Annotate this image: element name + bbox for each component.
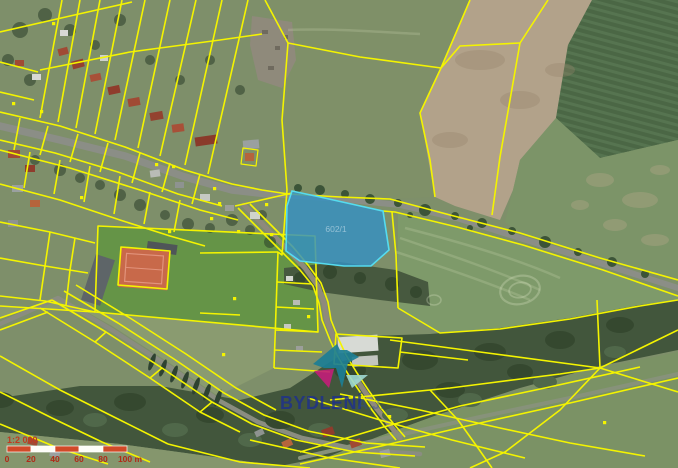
scale-tick-20: 20 [26, 454, 36, 464]
scale-tick-40: 40 [50, 454, 60, 464]
scale-tick-0: 0 [5, 454, 10, 464]
scale-tick-60: 60 [74, 454, 84, 464]
scale-bar-ruler [7, 446, 127, 452]
parcel-number-label: 602/1 [325, 224, 347, 234]
watermark-suffix-text: A.J. [357, 396, 385, 413]
scale-tick-80: 80 [98, 454, 108, 464]
scale-tick-100m: 100 m [118, 454, 143, 464]
scale-ratio-label: 1:2 000 [7, 435, 38, 445]
cadastral-aerial-map[interactable]: 602/1 BYDLENÍ A.J. 1:2 000 0 20 40 60 80… [0, 0, 678, 468]
watermark-brand-text: BYDLENÍ [280, 392, 363, 413]
